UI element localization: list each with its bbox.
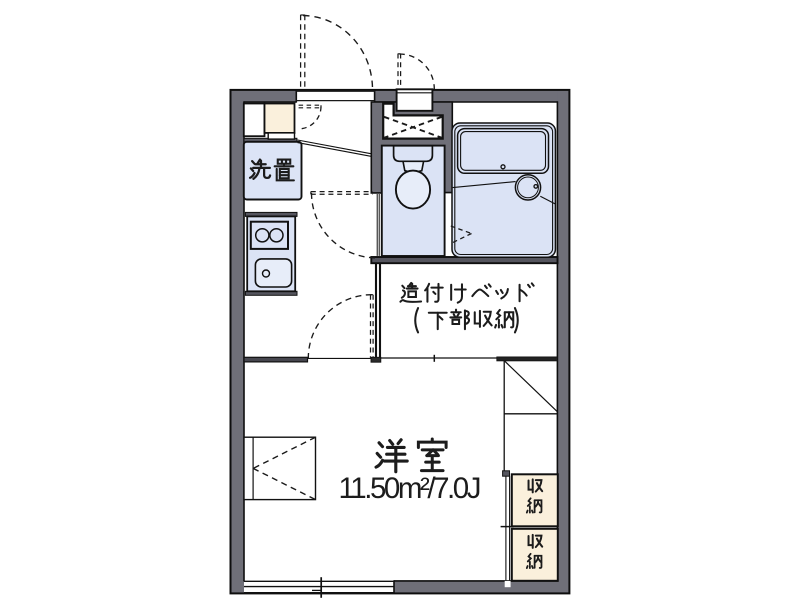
svg-text:11.50m²/7.0J: 11.50m²/7.0J — [339, 472, 482, 505]
